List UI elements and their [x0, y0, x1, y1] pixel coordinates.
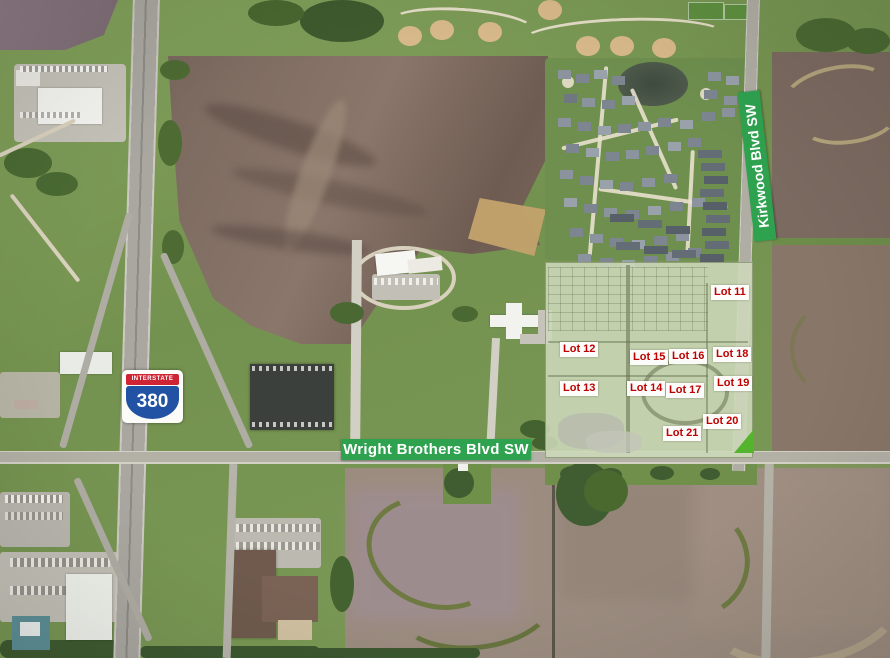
lot-17-label: Lot 17 [666, 383, 704, 398]
truck-row [252, 366, 332, 371]
lot-13-label: Lot 13 [560, 381, 598, 396]
lot-11-label: Lot 11 [711, 285, 749, 300]
tree-cluster [36, 172, 78, 196]
lot-16-label: Lot 16 [669, 349, 707, 364]
plat-line [548, 375, 708, 377]
industrial-building-small [16, 70, 40, 86]
lot-21-label: Lot 21 [663, 426, 701, 441]
field-mauve-topleft [0, 0, 118, 50]
field-divider-green [772, 238, 890, 245]
truck-row [20, 66, 108, 72]
pond [618, 62, 688, 106]
park-path [519, 14, 726, 61]
farmstead-house [458, 464, 468, 471]
wright-brothers-blvd-label: Wright Brothers Blvd SW [341, 439, 531, 460]
tree-line [300, 648, 480, 658]
baseball-diamond [538, 0, 562, 20]
interstate-shield-number: 380 [126, 386, 179, 419]
truck-row [5, 495, 63, 503]
truck-row [252, 422, 332, 427]
truckstop-lot-upper [0, 372, 60, 418]
tree-cluster [846, 28, 890, 54]
lot-20-label: Lot 20 [703, 414, 741, 429]
interstate-380-shield: INTERSTATE 380 [122, 370, 183, 423]
tree-cluster [160, 60, 190, 80]
gravel-path [10, 193, 81, 282]
teal-building-roof-white [20, 622, 40, 636]
warehouse-roof [262, 576, 318, 622]
truck-row [236, 542, 320, 550]
truck-row [20, 112, 80, 118]
warehouse-apron [278, 620, 312, 640]
access-road [350, 240, 362, 456]
tree-cluster [330, 302, 364, 324]
tree-cluster [650, 466, 674, 480]
lot-19-label: Lot 19 [714, 376, 752, 391]
truckstop-building [66, 574, 112, 640]
truck-row [5, 512, 63, 520]
swale-arc [790, 300, 888, 398]
tree-cluster [248, 0, 304, 26]
tree-cluster [700, 468, 720, 480]
townhome-rows [698, 150, 722, 158]
lot-15-label: Lot 15 [630, 350, 668, 365]
tree-cluster [158, 120, 182, 166]
farmstead-trees [444, 468, 474, 498]
tree-cluster [584, 470, 628, 512]
lot-12-label: Lot 12 [560, 342, 598, 357]
soccer-field [688, 2, 724, 20]
interstate-shield-header: INTERSTATE [126, 374, 179, 385]
access-road [486, 338, 500, 454]
aerial-site-map: Lot 11 Lot 12 Lot 13 Lot 14 Lot 15 Lot 1… [0, 0, 890, 658]
cul-de-sac [700, 88, 712, 100]
truck-row [10, 558, 110, 567]
house-cluster [558, 70, 571, 79]
industrial-building-topleft [38, 88, 102, 124]
tree-cluster [300, 0, 384, 42]
truck-row [236, 524, 320, 532]
tree-cluster [330, 556, 354, 612]
lot-14-label: Lot 14 [627, 381, 665, 396]
green-triangle [734, 429, 754, 453]
drainage-line [552, 468, 555, 658]
lot-18-label: Lot 18 [713, 347, 751, 362]
car-row [374, 278, 438, 285]
industrial-dark-building [250, 364, 334, 430]
tree-cluster [452, 306, 478, 322]
graded-patch [586, 431, 642, 453]
